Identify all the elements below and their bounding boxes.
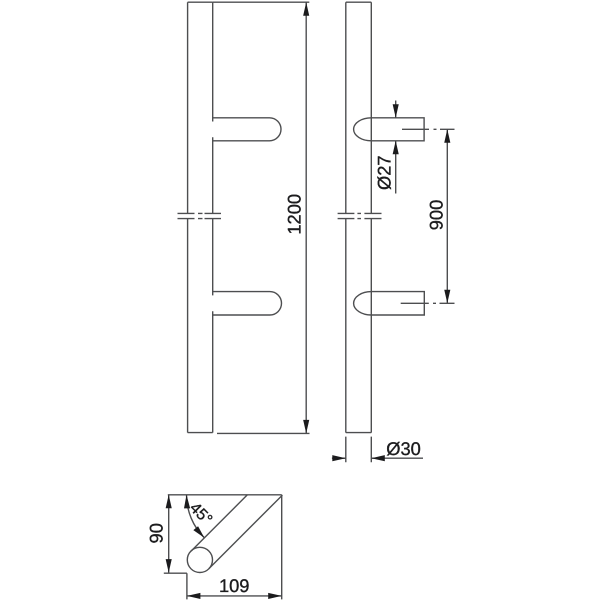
svg-text:900: 900 [426, 200, 447, 231]
svg-text:90: 90 [145, 523, 166, 543]
svg-text:Ø27: Ø27 [373, 155, 394, 190]
svg-text:109: 109 [219, 575, 250, 596]
svg-text:1200: 1200 [283, 194, 304, 235]
svg-text:45°: 45° [186, 500, 215, 529]
svg-text:Ø30: Ø30 [386, 438, 421, 459]
